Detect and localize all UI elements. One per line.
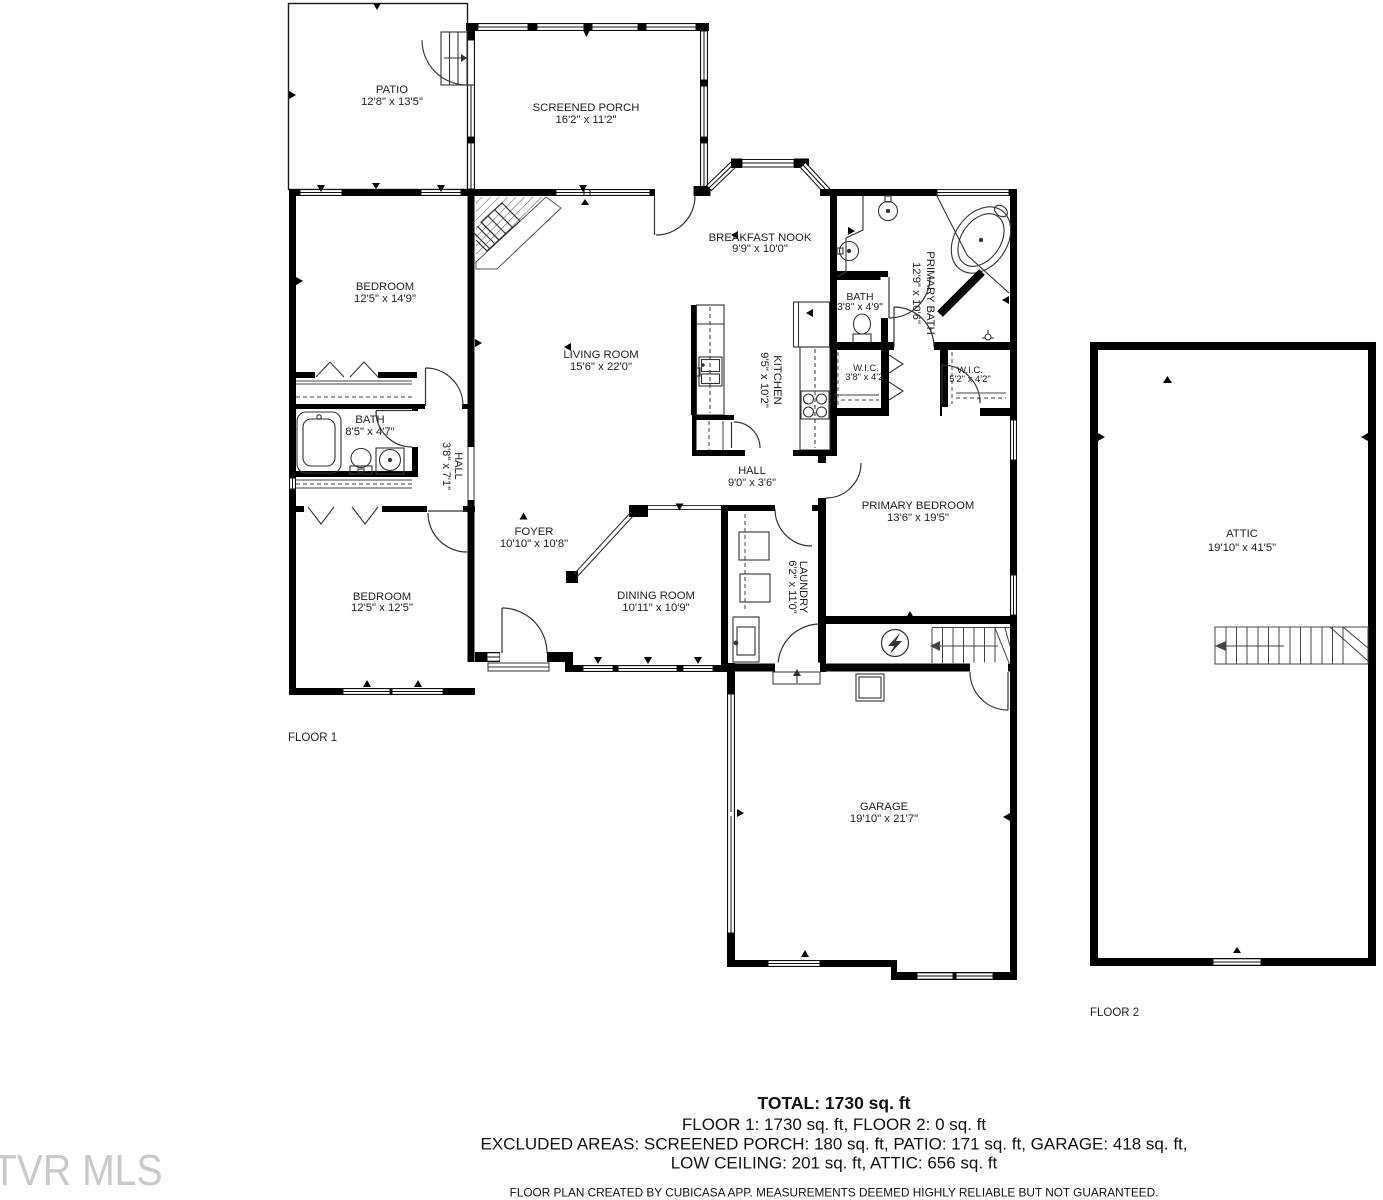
svg-text:DINING ROOM: DINING ROOM bbox=[617, 590, 695, 602]
svg-text:KITCHEN: KITCHEN bbox=[771, 355, 783, 405]
svg-text:PRIMARY BATH: PRIMARY BATH bbox=[924, 251, 936, 335]
svg-text:GARAGE: GARAGE bbox=[860, 801, 909, 813]
svg-text:LOW CEILING: 201 sq. ft, ATTIC: LOW CEILING: 201 sq. ft, ATTIC: 656 sq. … bbox=[671, 1154, 998, 1173]
svg-text:13'6" x 19'5": 13'6" x 19'5" bbox=[887, 512, 949, 524]
svg-text:FLOOR 1: FLOOR 1 bbox=[288, 732, 337, 744]
svg-text:EXCLUDED AREAS: SCREENED PORCH: EXCLUDED AREAS: SCREENED PORCH: 180 sq. … bbox=[480, 1135, 1187, 1154]
svg-text:5'2" x 4'2": 5'2" x 4'2" bbox=[949, 374, 991, 385]
svg-text:LIVING ROOM: LIVING ROOM bbox=[563, 349, 638, 361]
svg-text:3'8" x 7'1": 3'8" x 7'1" bbox=[440, 442, 452, 490]
svg-text:15'6" x 22'0": 15'6" x 22'0" bbox=[570, 361, 632, 373]
svg-text:TVR MLS: TVR MLS bbox=[0, 1145, 163, 1195]
svg-text:BEDROOM: BEDROOM bbox=[356, 281, 414, 293]
svg-text:10'11" x 10'9": 10'11" x 10'9" bbox=[622, 602, 689, 614]
svg-text:3'8" x 4'9": 3'8" x 4'9" bbox=[837, 301, 883, 313]
svg-text:12'5" x 14'9": 12'5" x 14'9" bbox=[354, 293, 416, 305]
svg-text:19'10" x 21'7": 19'10" x 21'7" bbox=[850, 813, 918, 825]
svg-text:16'2" x 11'2": 16'2" x 11'2" bbox=[555, 114, 616, 126]
svg-text:12'5" x 12'5": 12'5" x 12'5" bbox=[351, 602, 413, 614]
svg-text:SCREENED PORCH: SCREENED PORCH bbox=[533, 102, 640, 114]
svg-text:FLOOR PLAN CREATED BY CUBICASA: FLOOR PLAN CREATED BY CUBICASA APP. MEAS… bbox=[510, 1186, 1159, 1200]
svg-text:FOYER: FOYER bbox=[515, 526, 554, 538]
svg-text:12'9" x 10'6": 12'9" x 10'6" bbox=[910, 262, 922, 324]
svg-text:9'5" x 10'2": 9'5" x 10'2" bbox=[758, 352, 770, 408]
svg-text:FLOOR 2: FLOOR 2 bbox=[1090, 1007, 1139, 1019]
svg-text:9'0" x 3'6": 9'0" x 3'6" bbox=[728, 477, 776, 489]
svg-text:8'5" x 4'7": 8'5" x 4'7" bbox=[345, 426, 394, 438]
svg-text:HALL: HALL bbox=[452, 452, 464, 480]
svg-text:PRIMARY BEDROOM: PRIMARY BEDROOM bbox=[862, 500, 975, 512]
svg-text:PATIO: PATIO bbox=[376, 84, 408, 96]
svg-text:FLOOR 1: 1730 sq. ft, FLOOR 2:: FLOOR 1: 1730 sq. ft, FLOOR 2: 0 sq. ft bbox=[682, 1115, 987, 1134]
svg-text:10'10" x 10'8": 10'10" x 10'8" bbox=[500, 538, 568, 550]
svg-text:TOTAL: 1730 sq. ft: TOTAL: 1730 sq. ft bbox=[758, 1093, 911, 1113]
svg-text:12'8" x 13'5": 12'8" x 13'5" bbox=[361, 96, 423, 108]
svg-text:HALL: HALL bbox=[738, 465, 766, 477]
svg-text:3'8" x 4'2": 3'8" x 4'2" bbox=[845, 372, 887, 383]
svg-text:19'10" x 41'5": 19'10" x 41'5" bbox=[1208, 542, 1276, 554]
svg-text:ATTIC: ATTIC bbox=[1226, 528, 1258, 540]
svg-text:6'2" x 11'0": 6'2" x 11'0" bbox=[786, 560, 798, 613]
svg-text:9'9" x 10'0": 9'9" x 10'0" bbox=[732, 243, 788, 255]
svg-text:BATH: BATH bbox=[355, 414, 384, 426]
